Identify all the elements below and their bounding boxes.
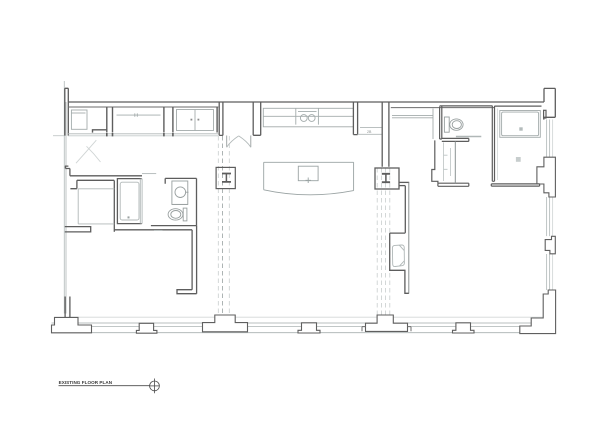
svg-text:2B: 2B	[367, 130, 372, 134]
svg-text:EXISTING FLOOR PLAN: EXISTING FLOOR PLAN	[59, 380, 113, 385]
